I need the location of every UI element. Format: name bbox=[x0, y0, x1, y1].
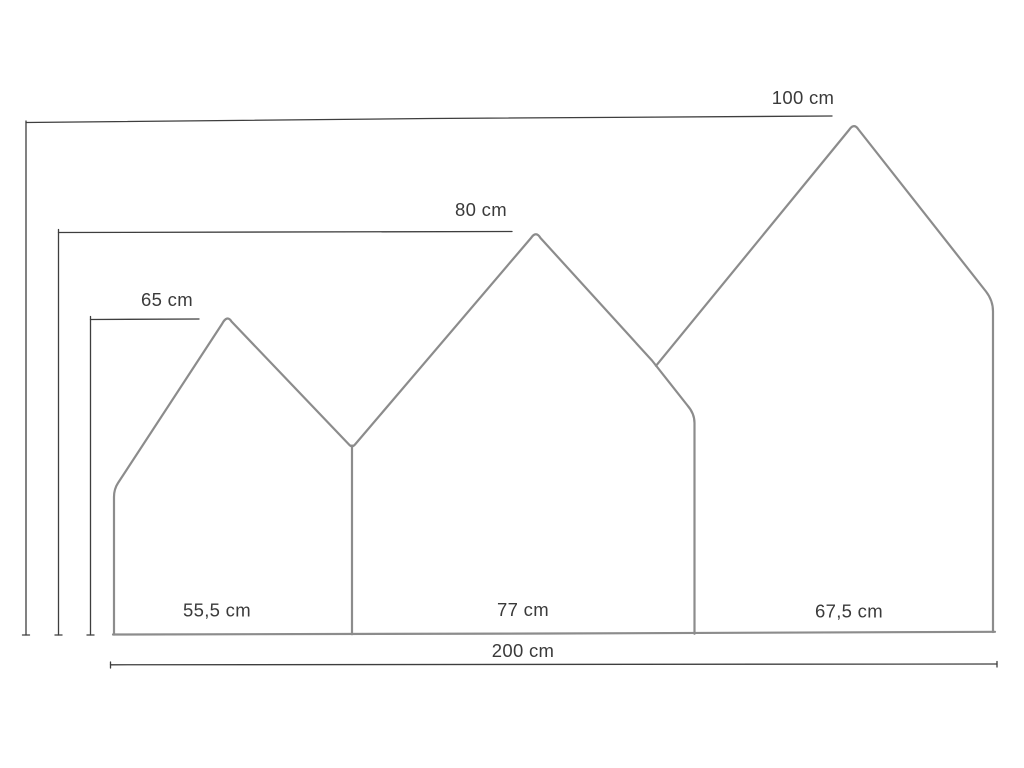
svg-text:65 cm: 65 cm bbox=[141, 289, 193, 310]
svg-text:67,5 cm: 67,5 cm bbox=[815, 601, 883, 622]
svg-text:55,5 cm: 55,5 cm bbox=[183, 600, 251, 621]
svg-text:77 cm: 77 cm bbox=[497, 599, 549, 620]
svg-text:80 cm: 80 cm bbox=[455, 199, 507, 220]
svg-text:200 cm: 200 cm bbox=[492, 640, 554, 661]
svg-text:100 cm: 100 cm bbox=[772, 87, 834, 108]
